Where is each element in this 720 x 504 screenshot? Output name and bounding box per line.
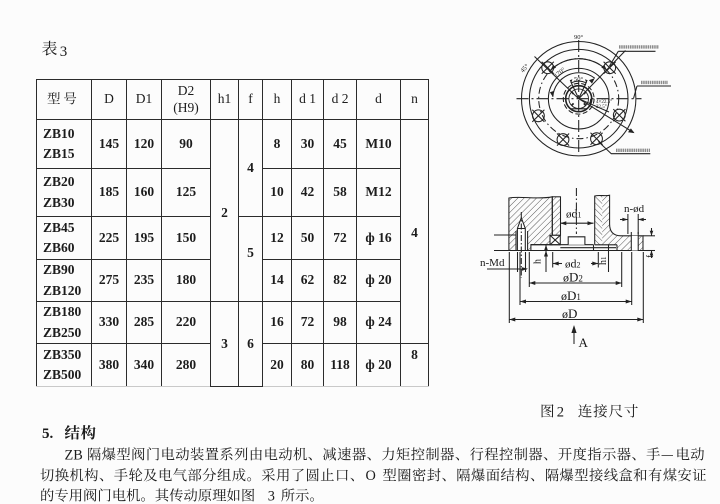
svg-text:3: 3 [60,44,68,60]
svg-text:ZB: ZB [65,447,83,463]
svg-text:2: 2 [557,404,564,420]
svg-text:O: O [366,468,376,484]
svg-text:3: 3 [268,488,275,504]
svg-text:5.: 5. [42,426,54,442]
